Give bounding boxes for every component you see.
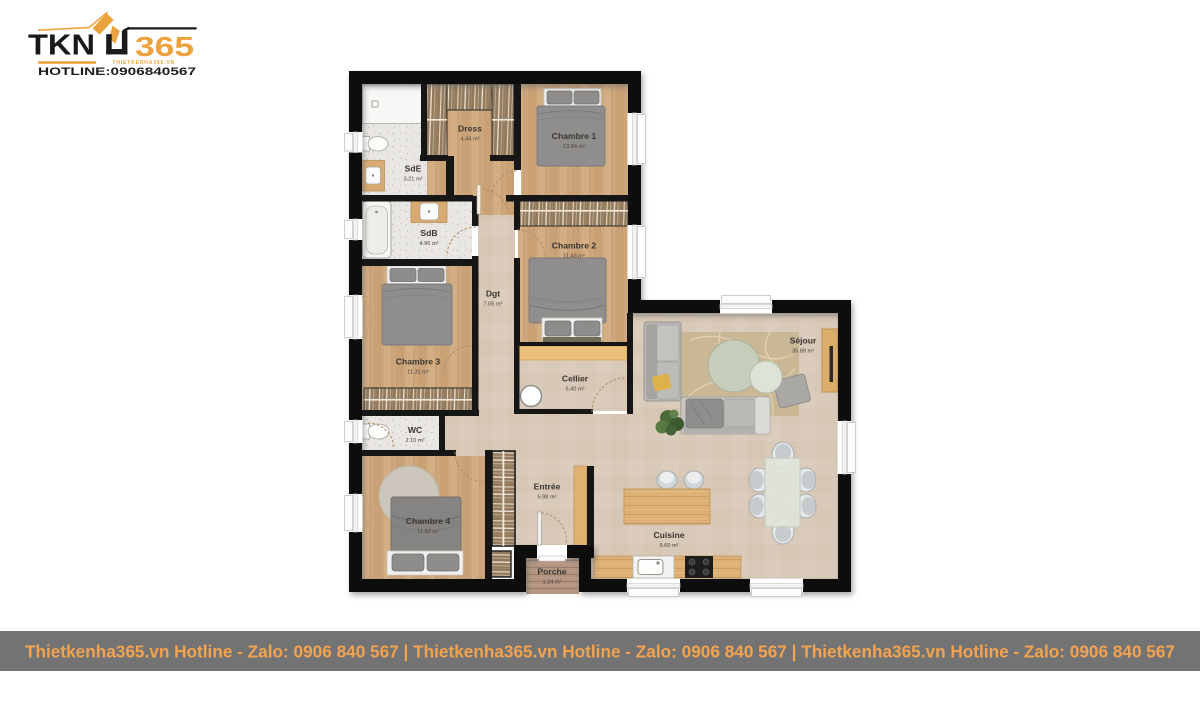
svg-text:11.31 m²: 11.31 m² bbox=[407, 370, 429, 376]
svg-text:5.98 m²: 5.98 m² bbox=[538, 495, 557, 501]
svg-text:5.40 m²: 5.40 m² bbox=[566, 387, 585, 393]
svg-text:2.10 m²: 2.10 m² bbox=[406, 438, 425, 444]
svg-text:11.62 m²: 11.62 m² bbox=[417, 529, 439, 535]
svg-text:Cellier: Cellier bbox=[562, 374, 589, 384]
svg-text:4.96 m²: 4.96 m² bbox=[420, 241, 439, 247]
svg-text:4.44 m²: 4.44 m² bbox=[461, 137, 480, 143]
svg-text:SdB: SdB bbox=[420, 228, 437, 238]
svg-text:9.60 m²: 9.60 m² bbox=[660, 543, 679, 549]
svg-text:Chambre 4: Chambre 4 bbox=[406, 516, 451, 526]
svg-text:1.24 m²: 1.24 m² bbox=[543, 580, 562, 586]
svg-text:Porche: Porche bbox=[537, 567, 566, 577]
svg-text:3.21 m²: 3.21 m² bbox=[404, 177, 423, 183]
svg-text:HOTLINE:0906840567: HOTLINE:0906840567 bbox=[38, 66, 196, 78]
svg-text:Dress: Dress bbox=[458, 124, 482, 134]
svg-text:Séjour: Séjour bbox=[790, 336, 817, 346]
svg-text:Entrée: Entrée bbox=[534, 482, 561, 492]
svg-text:TKN: TKN bbox=[28, 30, 95, 62]
svg-text:7.05 m²: 7.05 m² bbox=[484, 302, 503, 308]
svg-text:Dgt: Dgt bbox=[486, 289, 500, 299]
svg-text:Thietkenha365.vn Hotline - Zal: Thietkenha365.vn Hotline - Zalo: 0906 84… bbox=[25, 642, 1175, 662]
svg-text:Cuisine: Cuisine bbox=[653, 530, 684, 540]
svg-text:Chambre 1: Chambre 1 bbox=[552, 131, 597, 141]
svg-text:13.84 m²: 13.84 m² bbox=[563, 144, 585, 150]
svg-text:365: 365 bbox=[135, 31, 194, 62]
svg-text:SdE: SdE bbox=[405, 164, 422, 174]
svg-text:Chambre 3: Chambre 3 bbox=[396, 357, 441, 367]
svg-text:Chambre 2: Chambre 2 bbox=[552, 241, 597, 251]
svg-text:35.88 m²: 35.88 m² bbox=[792, 349, 814, 355]
svg-text:11.43 m²: 11.43 m² bbox=[563, 254, 585, 260]
svg-text:WC: WC bbox=[408, 425, 422, 435]
